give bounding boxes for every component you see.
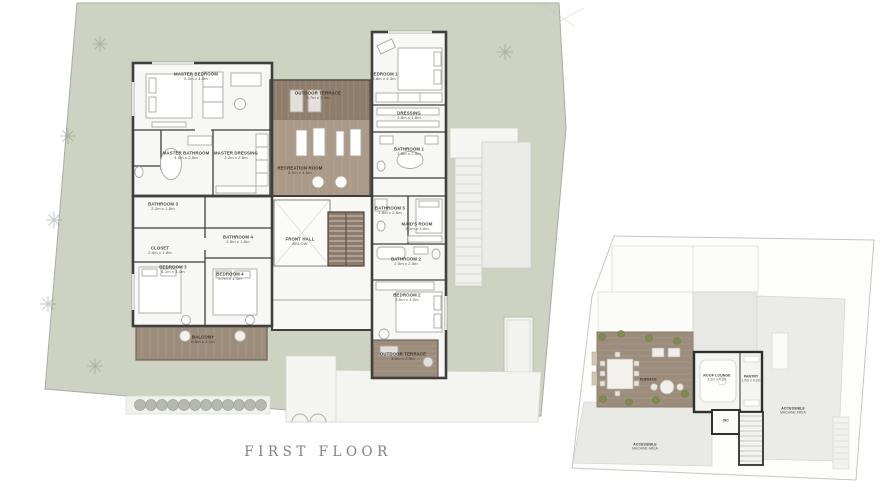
floor-plan-page: MASTER BEDROOM5.0m x 4.5m OUTDOOR TERRAC…	[0, 0, 890, 500]
roof-wc-room	[712, 410, 740, 434]
balcony-deck	[136, 326, 267, 360]
front-hall-void	[274, 200, 330, 266]
roof-terrace	[592, 331, 693, 408]
roof-plan	[572, 236, 874, 480]
stairs	[328, 212, 364, 266]
dining-table	[607, 359, 633, 389]
roof-stairs	[739, 412, 763, 465]
hedge-row	[126, 396, 270, 414]
round-table	[660, 380, 674, 394]
roof-lounge	[694, 352, 762, 412]
floor-plan-graphic	[0, 0, 890, 500]
